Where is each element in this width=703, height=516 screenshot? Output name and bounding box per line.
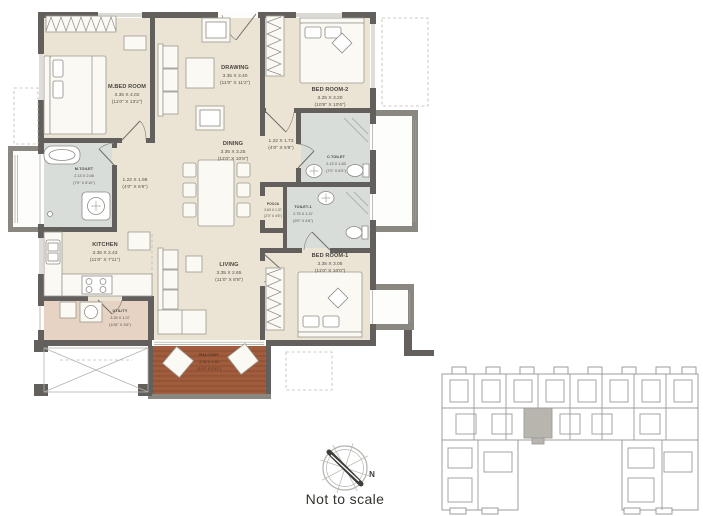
- dim-passage1-m: 1.22 X 1.98: [122, 177, 147, 183]
- dim-mtoilet-i: (7'0" X 6'10"): [73, 181, 96, 185]
- label-bedroom1: BED ROOM-1: [312, 253, 349, 259]
- dim-ctoilet-m: 2.13 X 1.83: [326, 162, 345, 166]
- dim-bedroom2-m: 3.25 X 3.20: [317, 95, 342, 101]
- dim-passage2-i: (4'0" X 5'8"): [268, 145, 294, 151]
- furniture-bedroom1: [266, 268, 362, 337]
- label-utility: UTILITY: [112, 309, 127, 313]
- apartment-plan: M.BED ROOM 3.35 X 4.02 (11'0" X 13'2") D…: [8, 12, 434, 399]
- dim-utility-m: 3.25 X 1.07: [110, 316, 129, 320]
- label-ctoilet: C.TOILET: [327, 155, 346, 159]
- dim-kitchen-i: (11'0" X 7'11"): [90, 257, 121, 263]
- label-balcony: BALCONY: [199, 353, 219, 357]
- dim-mtoilet-m: 2.13 X 2.08: [74, 174, 93, 178]
- label-bedroom2: BED ROOM-2: [312, 87, 349, 93]
- dim-bedroom1-i: (11'0" X 10'0"): [315, 268, 346, 274]
- compass: N: [320, 443, 375, 492]
- dim-ctoilet-i: (7'0" X 6'0"): [326, 169, 346, 173]
- keyplan-highlighted-unit: [524, 408, 552, 438]
- label-living: LIVING: [219, 262, 238, 268]
- right-bay-2: [376, 284, 414, 330]
- dim-dining-m: 3.35 X 3.25: [220, 149, 245, 155]
- dim-mbedroom-m: 3.35 X 4.02: [114, 92, 139, 98]
- dim-mbedroom-i: (11'0" X 13'2"): [112, 99, 143, 105]
- dim-bedroom1-m: 3.35 X 3.05: [317, 261, 342, 267]
- dim-pooja-i: (2'0" X 4'6"): [264, 214, 282, 218]
- dim-pooja-m: 0.63 X 1.37: [264, 208, 281, 212]
- furniture-dining: [183, 160, 250, 226]
- label-drawing: DRAWING: [221, 65, 249, 71]
- dim-balcony-m: 3.35 X 1.80: [199, 360, 218, 364]
- label-kitchen: KITCHEN: [92, 242, 118, 248]
- key-plan: [442, 367, 698, 514]
- dim-drawing-m: 3.35 X 3.40: [222, 73, 247, 79]
- dim-living-i: (11'0" X 8'8"): [215, 277, 243, 283]
- label-mtoilet: M.TOILET: [75, 167, 94, 171]
- scale-note: Not to scale: [306, 491, 385, 507]
- dim-drawing-i: (11'0" X 11'2"): [220, 80, 251, 86]
- label-dining: DINING: [223, 141, 243, 147]
- label-pooja: POOJA: [267, 202, 280, 206]
- dim-passage2-m: 1.22 X 1.73: [268, 138, 293, 144]
- dim-living-m: 3.35 X 2.65: [216, 270, 241, 276]
- left-bay: [8, 146, 38, 232]
- open-terrace: [44, 348, 148, 392]
- dim-balcony-i: (11'0" X 5'11"): [197, 367, 221, 371]
- dim-utility-i: (10'8" X 3'6"): [109, 323, 132, 327]
- dim-bedroom2-i: (10'8" X 10'6"): [315, 102, 346, 108]
- floorplan-canvas: M.BED ROOM 3.35 X 4.02 (11'0" X 13'2") D…: [0, 0, 703, 516]
- dim-dining-i: (11'0" X 10'8"): [218, 156, 249, 162]
- right-bay-1: [376, 110, 418, 232]
- dim-passage1-i: (4'0" X 6'6"): [122, 184, 148, 190]
- compass-north-label: N: [369, 470, 375, 479]
- furniture-bedroom2: [266, 16, 364, 83]
- dim-kitchen-m: 3.35 X 2.43: [92, 250, 117, 256]
- dim-toilet1-m: 2.75 X 1.37: [293, 212, 312, 216]
- dim-toilet1-i: (9'0" X 4'6"): [293, 219, 313, 223]
- label-mbedroom: M.BED ROOM: [108, 84, 146, 90]
- label-toilet1: TOILET-1: [294, 205, 311, 209]
